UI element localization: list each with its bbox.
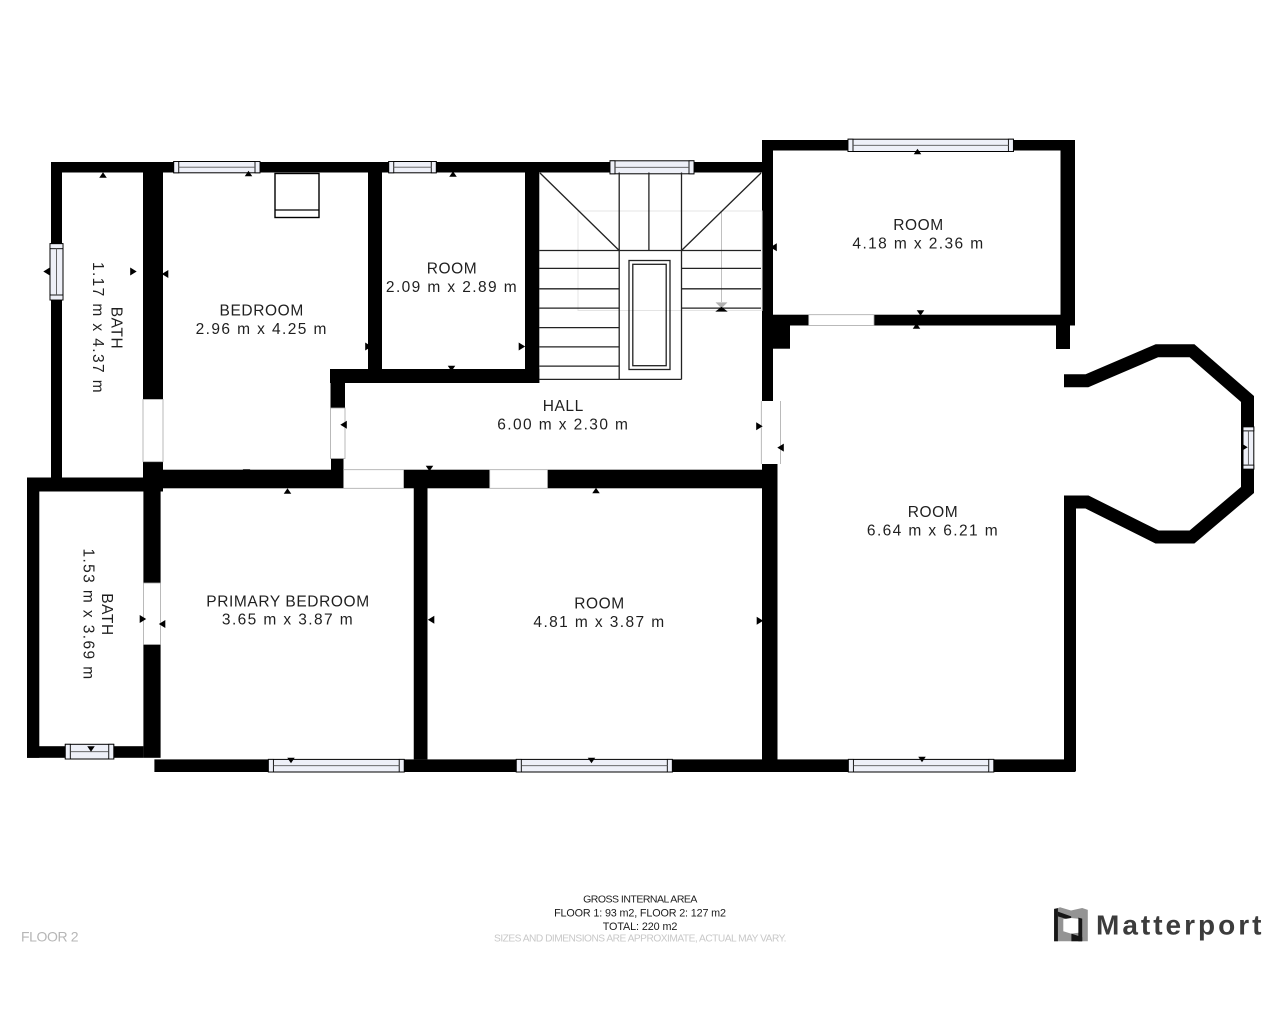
svg-text:BATH: BATH <box>98 593 115 636</box>
svg-text:ROOM: ROOM <box>908 504 959 521</box>
svg-text:FLOOR 2: FLOOR 2 <box>21 929 79 945</box>
svg-text:4.81 m x 3.87 m: 4.81 m x 3.87 m <box>533 614 665 631</box>
svg-text:TOTAL: 220 m2: TOTAL: 220 m2 <box>603 921 678 933</box>
svg-text:2.09 m x 2.89 m: 2.09 m x 2.89 m <box>386 279 518 296</box>
svg-text:1.53 m x 3.69 m: 1.53 m x 3.69 m <box>80 548 97 680</box>
svg-text:ROOM: ROOM <box>893 217 944 234</box>
svg-text:BEDROOM: BEDROOM <box>220 303 304 320</box>
svg-text:SIZES AND DIMENSIONS ARE APPRO: SIZES AND DIMENSIONS ARE APPROXIMATE, AC… <box>494 933 786 944</box>
svg-text:ROOM: ROOM <box>427 261 478 278</box>
svg-text:Matterport: Matterport <box>1096 910 1264 941</box>
svg-text:BATH: BATH <box>108 307 125 350</box>
svg-text:ROOM: ROOM <box>574 596 625 613</box>
svg-text:HALL: HALL <box>543 398 584 415</box>
svg-text:FLOOR 1: 93 m2, FLOOR 2: 127 m: FLOOR 1: 93 m2, FLOOR 2: 127 m2 <box>554 907 726 919</box>
svg-text:3.65 m x 3.87 m: 3.65 m x 3.87 m <box>222 612 354 629</box>
svg-text:4.18 m x 2.36 m: 4.18 m x 2.36 m <box>852 236 984 253</box>
svg-text:2.96 m x 4.25 m: 2.96 m x 4.25 m <box>196 321 328 338</box>
svg-text:GROSS INTERNAL AREA: GROSS INTERNAL AREA <box>583 894 697 906</box>
svg-text:PRIMARY BEDROOM: PRIMARY BEDROOM <box>206 593 369 610</box>
svg-text:1.17 m x 4.37 m: 1.17 m x 4.37 m <box>89 262 106 394</box>
svg-text:6.00 m x 2.30 m: 6.00 m x 2.30 m <box>497 416 629 433</box>
svg-text:6.64 m x 6.21 m: 6.64 m x 6.21 m <box>867 523 999 540</box>
